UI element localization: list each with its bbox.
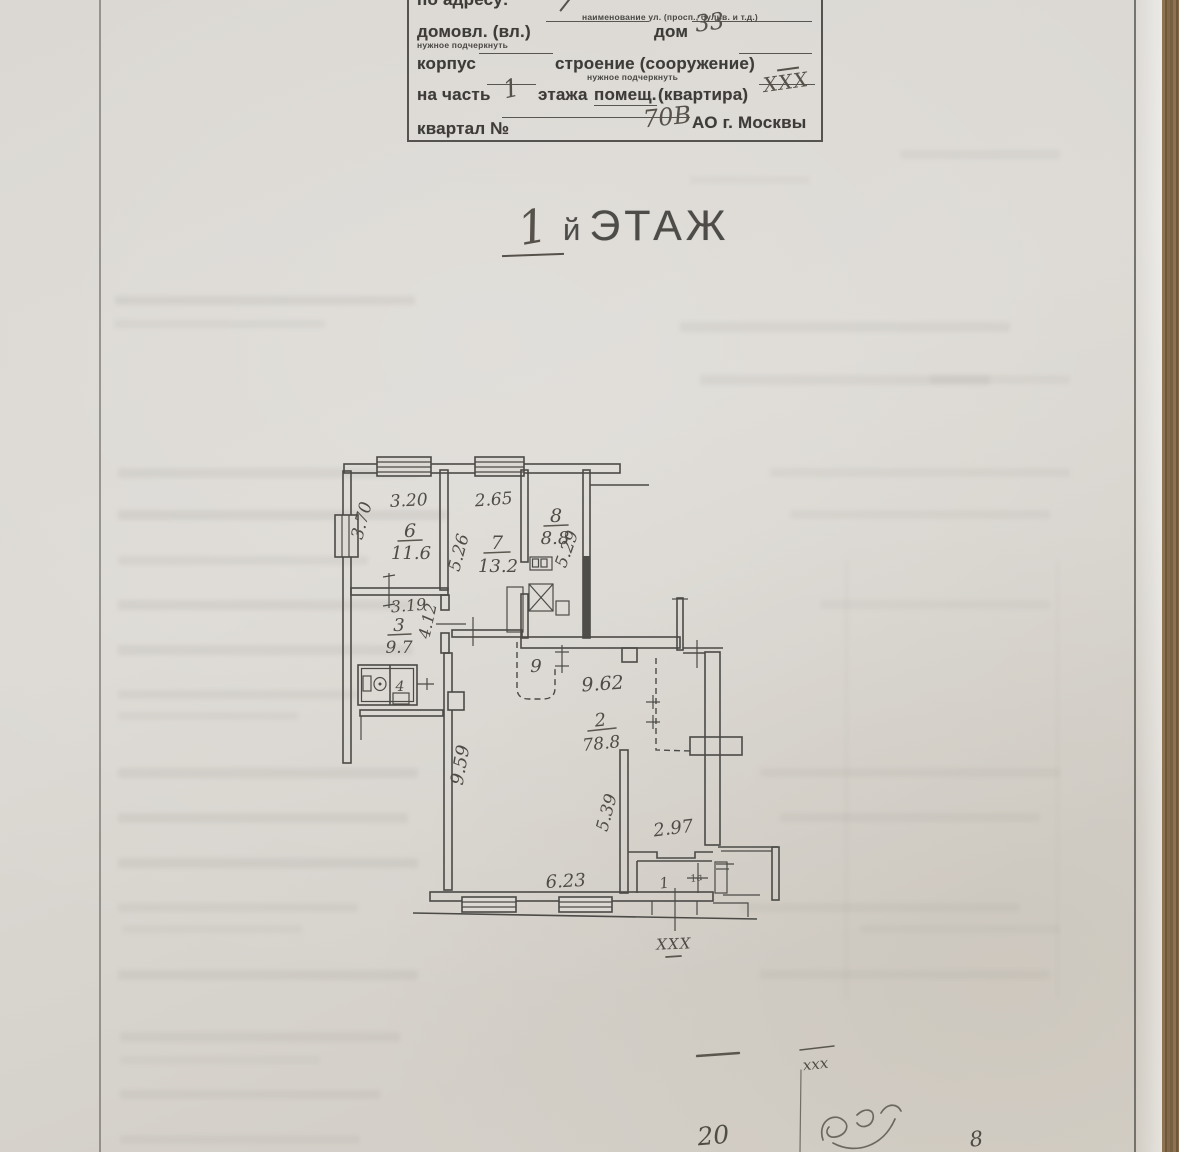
kvartal-value-handwritten: 70В [642,101,693,134]
kvartal-label: квартал № [417,119,509,139]
bathroom-block [358,665,443,740]
kitchen-fixtures [507,557,569,632]
dashed-opening [656,658,692,751]
wall-room8-right [583,470,590,638]
floor-number-handwritten: 1 [500,73,522,105]
ownership-underline [546,21,649,22]
leader-vertical [800,1070,801,1152]
room9-number: 9 [530,656,541,677]
wall-7-8-lower [521,594,528,638]
xxx-dash [666,956,681,957]
house-number-handwritten: 33 [694,8,726,37]
room3-number: 3 [393,615,404,636]
wall-bottom [430,892,713,901]
part-of-label: на часть [417,85,491,105]
apt-number-handwritten: XXX [762,67,811,97]
room1-number: 1 [658,873,670,892]
room2-number: 2 [593,709,608,731]
desk-wood-strip [1162,0,1179,1152]
note-number-8: 8 [968,1126,984,1151]
dim-room6-top: 3.20 [389,490,428,512]
wall-hall-bottom [360,710,443,716]
dim-corridor-side: 4.12 [414,601,440,641]
wall-corridor-main [444,653,452,890]
ownership-label: домовл. (вл.) [417,22,531,42]
title-text: ЭТАЖ [589,202,729,251]
entrance-vestibule [715,847,779,900]
sill-line [413,913,757,919]
sink [393,693,409,704]
wall-corridor-a [441,595,449,610]
paper-edge [1135,0,1162,1152]
page-title: й ЭТАЖ [563,202,729,251]
signature-scribble [822,1105,901,1148]
room1-outline [637,861,712,893]
wall-corridor-b [441,633,449,653]
house-label: дом [654,22,688,42]
dim-room7-top: 2.65 [473,489,513,512]
dim-side2: 5.39 [593,792,622,834]
toilet-bowl [374,678,386,691]
pomesch-label: помещ. [594,85,657,106]
xxx-overline [800,1046,834,1050]
dashed-room9 [517,642,555,699]
sink-box [529,584,553,611]
room7-number: 7 [491,532,504,554]
stroenie-underline [739,53,812,54]
address-label: по адресу: [417,0,509,10]
etazha-label: этажа [538,85,588,105]
wall-6-3 [351,588,448,595]
dash-ticks [646,695,660,729]
dim-hall: 9.62 [581,672,625,697]
pen-strike [559,0,576,12]
note-number-20: 20 [695,1120,730,1152]
dim-room6-left: 3.70 [348,500,377,542]
underline-hint-1: нужное подчеркнуть [417,40,508,50]
scanned-floor-plan-page: по адресу: наименование ул. (просп., бул… [0,0,1179,1152]
form-header-box: по адресу: наименование ул. (просп., бул… [407,0,823,142]
dim-bottom: 6.23 [545,870,586,893]
kitchen-cabinet [556,601,569,615]
wall-room7-bottom [452,630,522,637]
room8-number: 8 [550,505,562,527]
window-left [335,515,358,557]
wall-entry-left [620,750,628,893]
vent-notch [622,648,637,662]
dim-room7-side: 5.26 [445,532,474,574]
room6-area: 11.6 [391,543,431,564]
wall-7-8-upper [521,470,528,562]
room9-ticks [555,645,569,673]
dim-room8-side: 5.29 [551,528,583,571]
title-suffix-small: й [563,212,580,248]
plan-xxx-mark: XXX [655,934,692,953]
dim-corridor: 9.59 [447,743,475,786]
title-underline [502,253,564,257]
wall-piece-right [677,598,683,650]
room2-area: 78.8 [582,732,622,756]
korpus-label: корпус [417,54,476,74]
toilet-dot [379,683,382,686]
wall-kitchen-bottom [521,637,680,648]
toilet-tank [363,676,371,691]
room8-area: 8.8 [541,528,570,549]
dim-entry: 2.97 [651,816,695,842]
stove [530,557,552,570]
room1-annex: 1а [689,872,703,885]
ao-moscow-label: АО г. Москвы [692,113,806,133]
room7-area: 13.2 [478,556,518,577]
room6-number: 6 [404,520,416,542]
duct-pier [448,692,464,710]
cupboard [507,587,523,632]
title-floor-number-handwritten: 1 [514,198,552,256]
stroenie-label: строение (сооружение) [555,54,755,74]
wall-right-main [705,652,720,845]
bottom-notes: xxx 20 8 [695,1046,984,1152]
wall-entry-bottom [628,852,713,858]
xxx-note: xxx [802,1054,830,1075]
window-room7 [475,457,524,476]
korpus-underline [479,53,553,54]
column-cross [690,737,742,755]
underline-hint-2: нужное подчеркнуть [587,72,678,82]
pen-dash [697,1053,739,1056]
wall-6-7 [440,470,448,590]
window-bottom-2 [559,897,612,912]
window-bottom-1 [462,897,516,912]
room4-number: 4 [395,679,405,695]
page-border-left [99,0,101,1152]
wall-dark-fill [584,556,590,638]
